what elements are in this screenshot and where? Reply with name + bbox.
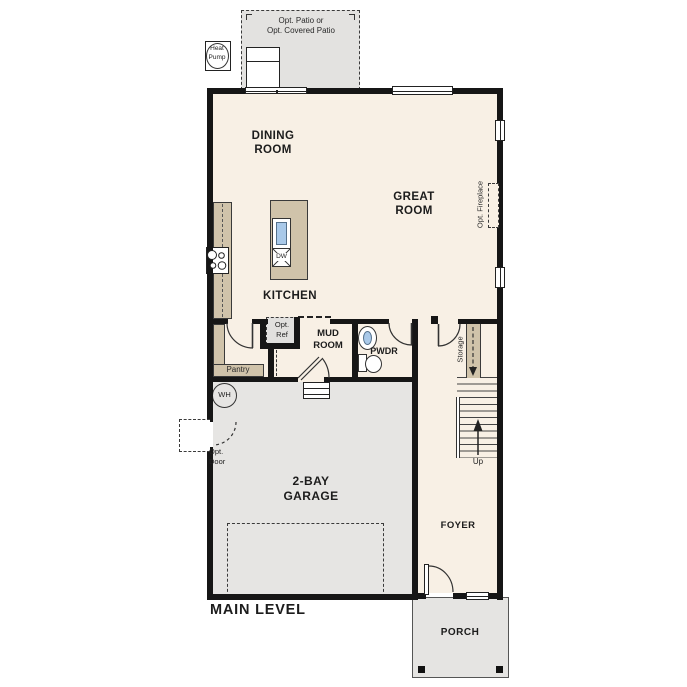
front-door-leaf	[424, 564, 429, 595]
mudroom-dashed-wall	[298, 316, 331, 318]
sliding-patio-door	[245, 87, 307, 94]
dishwasher-label: DW	[274, 253, 289, 261]
garage-label: 2-BAY GARAGE	[271, 474, 351, 504]
wall-mudtop-d	[458, 319, 497, 324]
wall-right	[497, 88, 503, 600]
toilet-bowl	[365, 355, 382, 373]
opt-door-label: Opt. Door	[209, 447, 239, 467]
island-sink-basin	[276, 222, 287, 245]
wall-pwdr-right	[412, 319, 418, 377]
water-heater-label: WH	[212, 390, 237, 399]
wall-stub-hall	[431, 316, 438, 324]
heat-pump-unit: Heat Pump	[205, 41, 231, 71]
great-room-label: GREAT ROOM	[374, 190, 454, 219]
foyer-label: FOYER	[428, 520, 488, 532]
window-top	[392, 86, 453, 95]
pwdr-sink-basin	[363, 331, 372, 345]
wall-garage-right	[412, 377, 418, 600]
patio-label: Opt. Patio or Opt. Covered Patio	[246, 16, 356, 36]
kitchen-label: KITCHEN	[250, 289, 330, 303]
window-foyer-sidelite	[466, 592, 489, 600]
window-right-lower	[495, 267, 505, 288]
porch-post-right	[496, 666, 503, 673]
stair-stringer	[456, 397, 460, 458]
optional-fireplace	[488, 183, 499, 228]
opt-fireplace-label: Opt. Fireplace	[476, 172, 487, 238]
pantry-label: Pantry	[214, 365, 262, 375]
pwdr-label: PWDR	[360, 346, 408, 357]
stairs	[457, 377, 497, 458]
wall-closet	[268, 347, 274, 377]
mud-room-label: MUD ROOM	[303, 328, 353, 352]
storage-closet-strip	[466, 324, 481, 378]
wall-mudtop-a	[213, 319, 228, 324]
porch-label: PORCH	[430, 627, 490, 640]
wall-mud-garage-right	[324, 377, 412, 382]
optional-door	[179, 419, 210, 452]
wall-foyer-bottom-b	[453, 593, 467, 599]
storage-label: Storage	[456, 325, 467, 375]
floor-plan: Opt. Patio or Opt. Covered Patio Heat Pu…	[0, 0, 687, 687]
wall-left	[207, 88, 213, 600]
heat-pump-label: Heat Pump	[206, 45, 228, 63]
window-right-upper	[495, 120, 505, 141]
wall-foyer-bottom-c	[488, 593, 503, 599]
wall-mud-garage-left	[207, 377, 298, 382]
wall-garage-bottom	[207, 594, 418, 600]
wall-mudtop-c	[330, 319, 389, 324]
up-label: Up	[468, 457, 488, 467]
patio-chimney-structure	[246, 47, 280, 88]
porch-post-left	[418, 666, 425, 673]
closet-dashed-line	[276, 350, 277, 376]
mud-garage-steps	[303, 382, 330, 399]
wall-refnook-right	[294, 317, 300, 345]
garage-door-dashed	[227, 523, 384, 597]
main-level-title: MAIN LEVEL	[210, 601, 370, 619]
dining-room-label: DINING ROOM	[233, 129, 313, 158]
